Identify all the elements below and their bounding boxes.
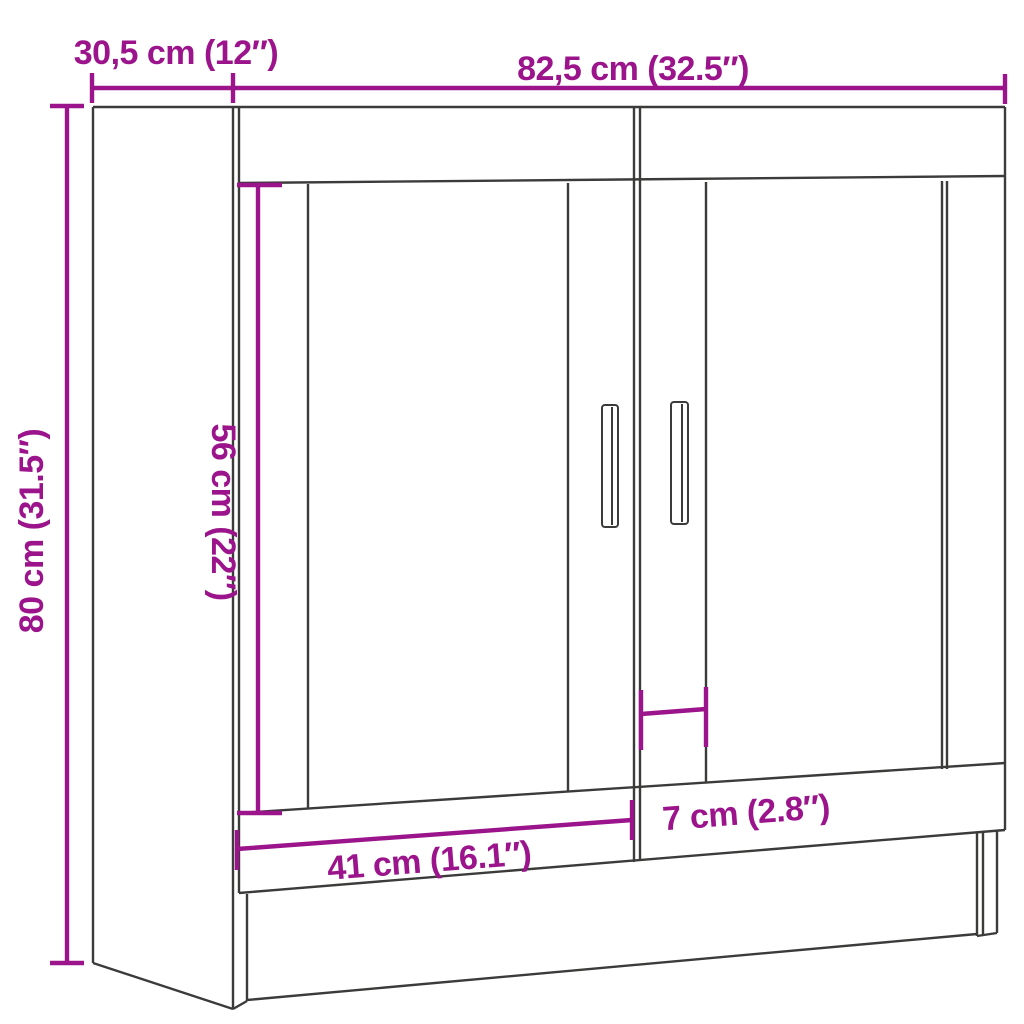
depth-dimension-label: 30,5 cm (12″) <box>74 34 278 72</box>
height-dimension-label: 80 cm (31.5″) <box>13 429 51 633</box>
glass-bottom-line <box>239 763 1005 813</box>
right-leg-bottom <box>977 933 997 936</box>
width-dimension-label: 82,5 cm (32.5″) <box>517 50 749 88</box>
doors <box>239 108 1005 862</box>
cabinet-diagram-svg: 30,5 cm (12″) 82,5 cm (32.5″) 80 cm (31.… <box>0 0 1024 1024</box>
dimension-glass-height: 56 cm (22″) <box>204 185 282 813</box>
frame-width-dimension-line <box>641 709 706 714</box>
dimension-door-width: 41 cm (16.1″) <box>237 800 632 888</box>
frame-width-dimension-label: 7 cm (2.8″) <box>661 788 831 839</box>
dimension-annotations: 30,5 cm (12″) 82,5 cm (32.5″) 80 cm (31.… <box>13 34 1005 963</box>
right-handle-body <box>671 402 688 524</box>
dimension-height: 80 cm (31.5″) <box>13 106 84 963</box>
left-door-handle <box>602 405 618 527</box>
left-post-bottom <box>233 1001 247 1009</box>
right-leg <box>977 831 997 936</box>
left-handle-body <box>602 405 618 527</box>
dimension-diagram: 30,5 cm (12″) 82,5 cm (32.5″) 80 cm (31.… <box>0 0 1024 1024</box>
glass-top-line <box>239 176 1005 183</box>
right-door-handle <box>671 402 688 524</box>
door-handles <box>602 402 688 527</box>
cabinet-left-bottom-slant <box>93 963 233 1009</box>
plinth-bottom-edge <box>247 934 977 1000</box>
dimension-frame-width: 7 cm (2.8″) <box>641 687 831 838</box>
glass-height-dimension-label: 56 cm (22″) <box>204 423 242 600</box>
dimension-top: 30,5 cm (12″) 82,5 cm (32.5″) <box>74 34 1005 104</box>
